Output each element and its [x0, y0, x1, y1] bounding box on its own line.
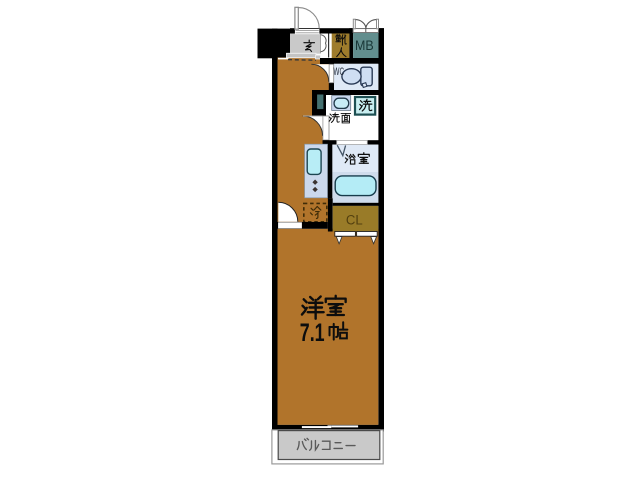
- svg-text:7.1: 7.1: [300, 319, 325, 347]
- svg-text:CL: CL: [346, 213, 363, 229]
- svg-text:WC: WC: [333, 66, 344, 78]
- svg-text:MB: MB: [355, 38, 374, 53]
